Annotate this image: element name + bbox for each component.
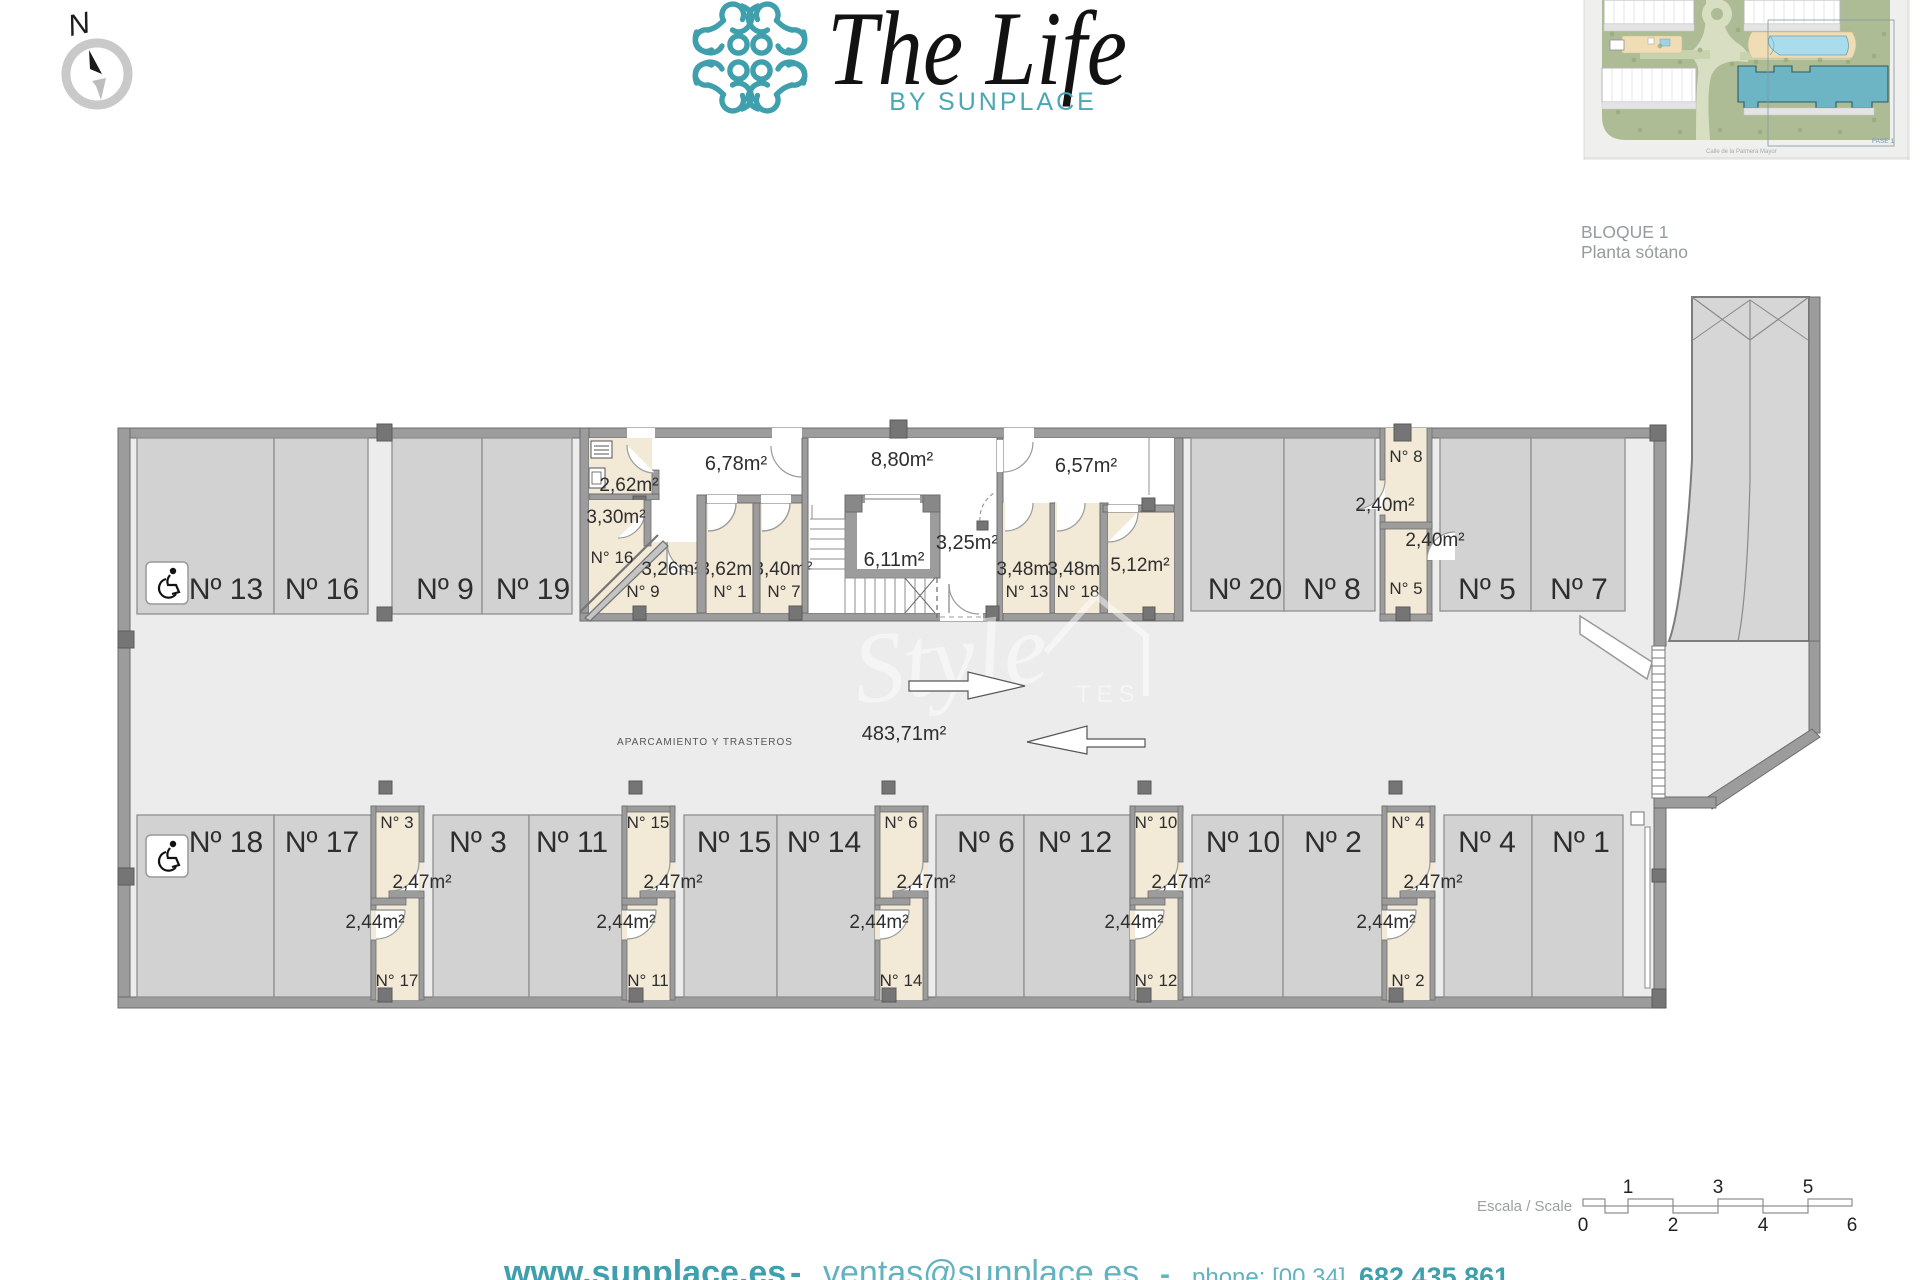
svg-text:5,12m²: 5,12m²	[1110, 555, 1169, 576]
svg-text:5: 5	[1803, 1177, 1814, 1198]
svg-text:TES: TES	[1076, 681, 1141, 708]
svg-text:ventas@sunplace.es: ventas@sunplace.es	[823, 1254, 1139, 1280]
svg-text:APARCAMIENTO Y TRASTEROS: APARCAMIENTO Y TRASTEROS	[617, 737, 793, 748]
svg-text:Nº 9: Nº 9	[416, 573, 474, 606]
svg-text:phone: [00 34]: phone: [00 34]	[1192, 1264, 1345, 1280]
svg-text:2,62m²: 2,62m²	[599, 475, 658, 496]
svg-text:N° 16: N° 16	[591, 548, 634, 567]
svg-text:6: 6	[1847, 1215, 1858, 1236]
svg-text:6,11m²: 6,11m²	[864, 549, 925, 571]
svg-text:2,44m²: 2,44m²	[1104, 912, 1163, 933]
svg-text:Style: Style	[847, 592, 1053, 726]
svg-text:Nº 12: Nº 12	[1038, 826, 1112, 859]
svg-text:3: 3	[1713, 1177, 1724, 1198]
svg-text:2,47m²: 2,47m²	[1151, 872, 1210, 893]
svg-text:N° 9: N° 9	[626, 582, 659, 601]
svg-text:2,44m²: 2,44m²	[345, 912, 404, 933]
svg-text:Nº 20: Nº 20	[1208, 573, 1282, 606]
svg-text:Planta sótano: Planta sótano	[1581, 242, 1688, 262]
svg-text:N° 17: N° 17	[376, 971, 419, 990]
svg-text:0: 0	[1578, 1215, 1589, 1236]
svg-text:3,30m²: 3,30m²	[586, 507, 645, 528]
svg-text:N° 11: N° 11	[627, 971, 668, 990]
svg-text:2,47m²: 2,47m²	[1403, 872, 1462, 893]
svg-text:Nº 1: Nº 1	[1552, 826, 1610, 859]
svg-text:N° 7: N° 7	[767, 582, 800, 601]
svg-text:6,57m²: 6,57m²	[1055, 455, 1118, 477]
svg-text:Nº 16: Nº 16	[285, 573, 359, 606]
svg-text:2,40m²: 2,40m²	[1405, 530, 1464, 551]
svg-text:N° 1: N° 1	[713, 582, 746, 601]
svg-text:Nº 19: Nº 19	[496, 573, 570, 606]
svg-text:2,47m²: 2,47m²	[896, 872, 955, 893]
svg-text:1: 1	[1623, 1177, 1634, 1198]
svg-text:www.sunplace.es: www.sunplace.es	[503, 1254, 786, 1280]
svg-text:N° 14: N° 14	[880, 971, 923, 990]
svg-text:BLOQUE 1: BLOQUE 1	[1581, 222, 1669, 242]
svg-text:Nº 6: Nº 6	[957, 826, 1015, 859]
svg-text:Nº 2: Nº 2	[1304, 826, 1362, 859]
svg-text:Nº 5: Nº 5	[1458, 573, 1516, 606]
svg-text:2,44m²: 2,44m²	[849, 912, 908, 933]
svg-text:4: 4	[1758, 1215, 1769, 1236]
svg-text:N° 2: N° 2	[1391, 971, 1424, 990]
svg-text:Nº 15: Nº 15	[697, 826, 771, 859]
svg-text:N° 12: N° 12	[1135, 971, 1178, 990]
svg-text:Nº 10: Nº 10	[1206, 826, 1280, 859]
svg-text:N° 8: N° 8	[1389, 447, 1422, 466]
svg-text:N° 5: N° 5	[1389, 579, 1422, 598]
svg-text:BY SUNPLACE: BY SUNPLACE	[889, 88, 1097, 116]
svg-text:2: 2	[1668, 1215, 1679, 1236]
svg-text:2,44m²: 2,44m²	[596, 912, 655, 933]
svg-text:Calle de la Palmera Mayor: Calle de la Palmera Mayor	[1706, 149, 1777, 155]
svg-text:Nº 18: Nº 18	[189, 826, 263, 859]
svg-text:FASE 1: FASE 1	[1872, 138, 1894, 145]
svg-text:-: -	[790, 1254, 801, 1280]
svg-text:3,25m²: 3,25m²	[936, 532, 999, 554]
svg-text:Escala / Scale: Escala / Scale	[1477, 1198, 1572, 1215]
svg-text:3,48m²: 3,48m²	[1047, 559, 1106, 580]
svg-text:N° 6: N° 6	[884, 813, 917, 832]
svg-text:N° 10: N° 10	[1135, 813, 1178, 832]
svg-text:3,26m²: 3,26m²	[641, 559, 700, 580]
svg-text:N° 15: N° 15	[627, 813, 670, 832]
svg-text:Nº 17: Nº 17	[285, 826, 359, 859]
svg-text:6,78m²: 6,78m²	[705, 453, 768, 475]
svg-text:Nº 3: Nº 3	[449, 826, 507, 859]
svg-text:Nº 4: Nº 4	[1458, 826, 1516, 859]
svg-text:8,80m²: 8,80m²	[871, 449, 934, 471]
svg-text:2,47m²: 2,47m²	[643, 872, 702, 893]
svg-text:2,47m²: 2,47m²	[392, 872, 451, 893]
svg-text:483,71m²: 483,71m²	[862, 723, 947, 745]
svg-text:N° 4: N° 4	[1391, 813, 1424, 832]
svg-text:Nº 13: Nº 13	[189, 573, 263, 606]
svg-text:N° 3: N° 3	[380, 813, 413, 832]
svg-text:682 435 861: 682 435 861	[1359, 1262, 1509, 1280]
svg-text:2,44m²: 2,44m²	[1356, 912, 1415, 933]
svg-text:Nº 7: Nº 7	[1550, 573, 1608, 606]
svg-text:Nº 14: Nº 14	[787, 826, 861, 859]
svg-text:-: -	[1160, 1258, 1170, 1280]
svg-text:3,62m²: 3,62m²	[699, 559, 758, 580]
svg-text:2,40m²: 2,40m²	[1355, 495, 1414, 516]
svg-text:Nº 11: Nº 11	[536, 826, 608, 859]
svg-text:Nº 8: Nº 8	[1303, 573, 1361, 606]
